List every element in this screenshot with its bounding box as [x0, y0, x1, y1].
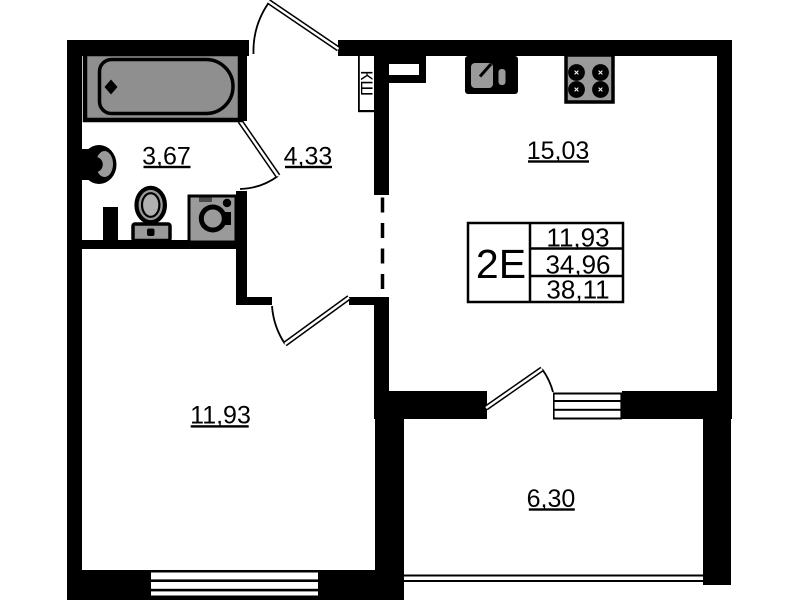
svg-text:38,11: 38,11 [546, 275, 609, 305]
svg-text:КШ: КШ [357, 71, 376, 96]
svg-text:2Е: 2Е [476, 241, 526, 287]
svg-text:11,93: 11,93 [546, 223, 609, 253]
